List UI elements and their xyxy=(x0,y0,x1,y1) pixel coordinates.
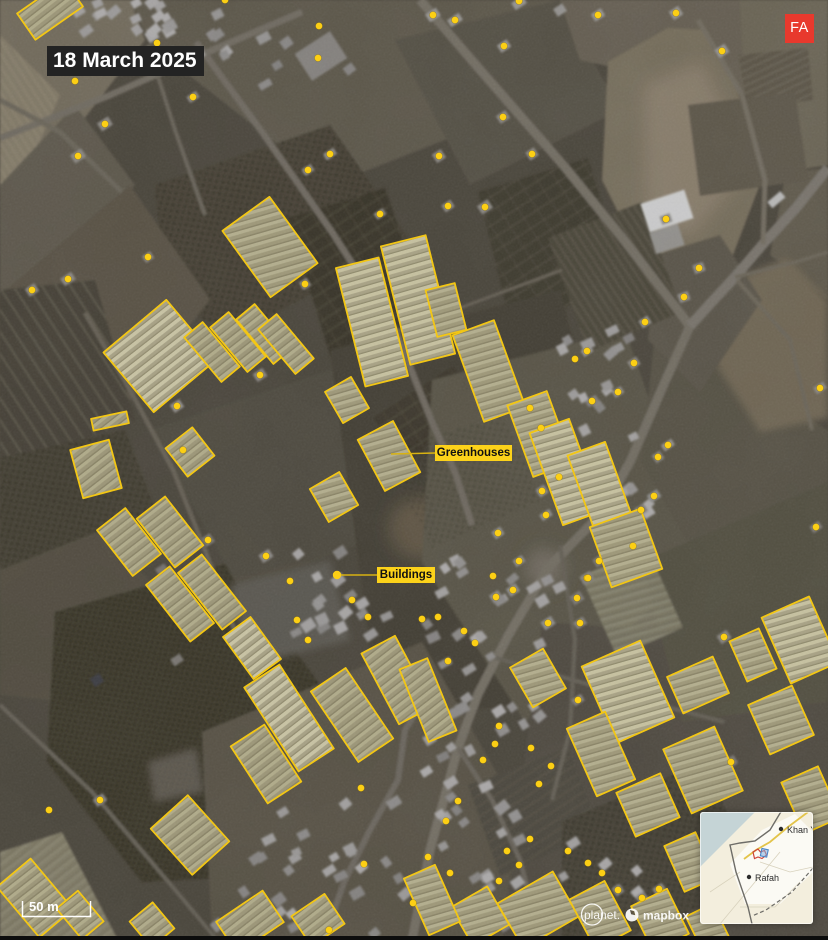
svg-text:planet.: planet. xyxy=(584,908,620,922)
svg-text:Rafah: Rafah xyxy=(755,873,779,883)
svg-text:50 m: 50 m xyxy=(29,899,59,914)
svg-text:Khan Y: Khan Y xyxy=(787,825,816,835)
svg-text:mapbox: mapbox xyxy=(643,909,689,923)
